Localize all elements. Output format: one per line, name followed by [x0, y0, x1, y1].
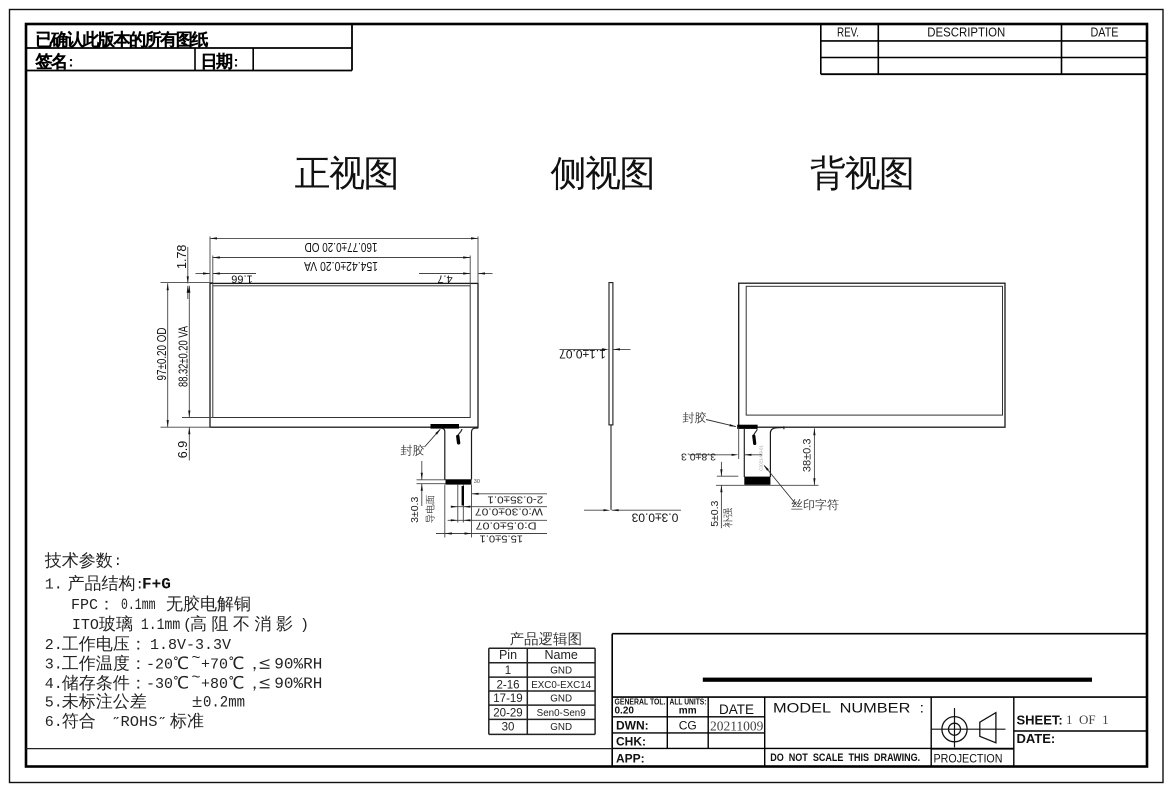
svg-text:1.1mm: 1.1mm: [141, 616, 180, 634]
svg-text:SHEET:: SHEET:: [1017, 713, 1063, 728]
svg-text:DO NOT SCALE THIS DRAWING.: DO NOT SCALE THIS DRAWING.: [770, 752, 920, 764]
svg-text:17-19: 17-19: [493, 693, 522, 705]
svg-text:15.5±0.1: 15.5±0.1: [479, 533, 523, 545]
svg-text:D:0.5±0.07: D:0.5±0.07: [475, 519, 536, 531]
svg-text:C2021-M9-01: C2021-M9-01: [758, 445, 763, 471]
svg-text:F+G: F+G: [142, 576, 171, 594]
svg-text:Sen0-Sen9: Sen0-Sen9: [537, 708, 586, 719]
svg-text:GND: GND: [550, 694, 572, 705]
svg-text:W:0.30±0.07: W:0.30±0.07: [475, 506, 543, 518]
svg-text:2-16: 2-16: [496, 679, 519, 691]
svg-text:20-29: 20-29: [493, 707, 522, 719]
svg-text:1.1±0.07: 1.1±0.07: [559, 347, 606, 361]
svg-text:Name: Name: [545, 648, 578, 662]
svg-text:3.: 3.: [45, 657, 63, 674]
svg-text:mm: mm: [679, 706, 697, 717]
svg-text:DATE:: DATE:: [1017, 731, 1056, 746]
svg-text:0.1mm: 0.1mm: [121, 596, 156, 614]
svg-text:Pin: Pin: [499, 648, 517, 662]
svg-text:160.77±0.20 OD: 160.77±0.20 OD: [305, 240, 378, 254]
svg-text:1.: 1.: [45, 577, 63, 594]
svg-text:5.: 5.: [45, 695, 63, 712]
svg-text:0.2mm: 0.2mm: [203, 694, 245, 712]
svg-text:DWN:: DWN:: [616, 719, 649, 733]
svg-text:+80: +80: [201, 676, 228, 693]
svg-text:DATE: DATE: [719, 702, 754, 717]
svg-text:3.8±0.3: 3.8±0.3: [681, 451, 716, 463]
svg-text:DESCRIPTION: DESCRIPTION: [927, 25, 1005, 40]
svg-text:MODEL NUMBER :: MODEL NUMBER :: [773, 700, 924, 716]
svg-text:): ): [300, 617, 309, 634]
svg-text:APP:: APP:: [616, 752, 645, 766]
svg-text:1.66: 1.66: [231, 273, 252, 285]
svg-text::: :: [69, 54, 74, 71]
svg-text:(: (: [183, 617, 192, 634]
svg-text:30: 30: [474, 479, 480, 485]
svg-text:2-0.35±0.1: 2-0.35±0.1: [487, 493, 543, 505]
svg-text:~: ~: [192, 650, 201, 667]
svg-text:DATE: DATE: [1091, 25, 1119, 40]
svg-text:ITO: ITO: [72, 617, 99, 634]
svg-text:0.20: 0.20: [615, 706, 635, 717]
svg-text:1: 1: [505, 665, 511, 677]
svg-text:PROJECTION: PROJECTION: [934, 752, 1003, 766]
svg-text:97±0.20 OD: 97±0.20 OD: [155, 328, 169, 381]
svg-text:5±0.3: 5±0.3: [709, 500, 721, 526]
svg-text:4.7: 4.7: [437, 273, 452, 285]
svg-text::: :: [114, 554, 122, 570]
svg-text:EXC0-EXC14: EXC0-EXC14: [531, 680, 591, 691]
svg-text:1.8V-3.3V: 1.8V-3.3V: [150, 637, 231, 654]
svg-text:REV.: REV.: [837, 25, 859, 40]
svg-text:CG: CG: [679, 719, 697, 733]
svg-text::: :: [234, 54, 239, 71]
svg-text:88.32±0.20 VA: 88.32±0.20 VA: [177, 326, 191, 387]
svg-text:30: 30: [502, 722, 515, 734]
svg-text:90%RH: 90%RH: [274, 675, 322, 693]
svg-text:GND: GND: [550, 665, 572, 676]
svg-text:1.78: 1.78: [175, 245, 189, 269]
svg-text:4.: 4.: [45, 676, 63, 693]
svg-text:3±0.3: 3±0.3: [409, 497, 421, 523]
svg-text:20211009: 20211009: [710, 719, 764, 734]
svg-text:~: ~: [192, 670, 201, 687]
svg-text:CHK:: CHK:: [616, 735, 646, 749]
svg-text:90%RH: 90%RH: [274, 656, 322, 674]
svg-text:-30: -30: [146, 676, 173, 693]
svg-text:FPC: FPC: [71, 597, 98, 614]
svg-text:+70: +70: [201, 657, 228, 674]
svg-text:2.: 2.: [45, 637, 63, 654]
svg-text:0.3±0.03: 0.3±0.03: [631, 511, 678, 525]
svg-text:ROHS: ROHS: [121, 714, 158, 731]
svg-text:-20: -20: [146, 657, 173, 674]
svg-text:154.42±0.20 VA: 154.42±0.20 VA: [303, 259, 378, 273]
svg-text:38±0.3: 38±0.3: [801, 439, 813, 473]
svg-text:1 OF 1: 1 OF 1: [1066, 712, 1109, 727]
svg-text:6.9: 6.9: [176, 441, 190, 458]
svg-text:GND: GND: [550, 722, 572, 733]
svg-text:6.: 6.: [45, 714, 63, 731]
